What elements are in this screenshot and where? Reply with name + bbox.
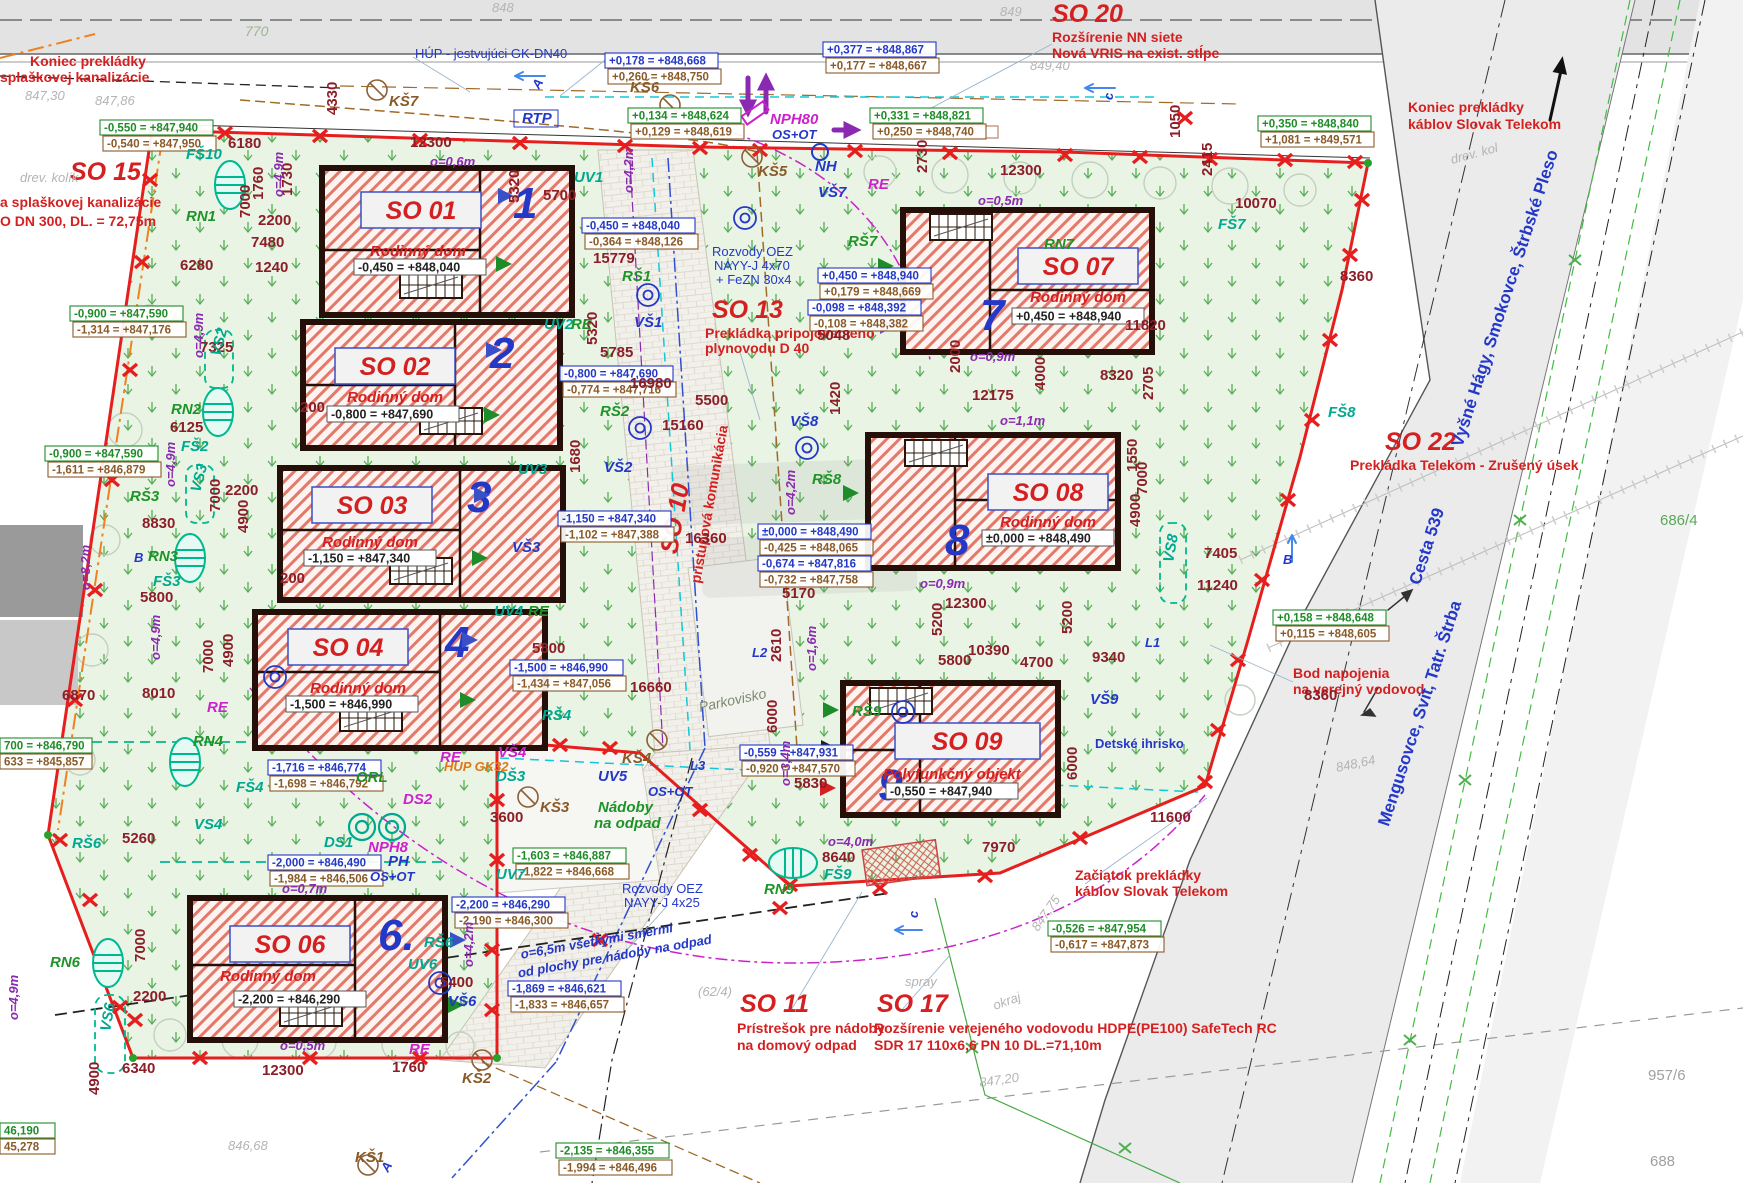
elevation-label: -0,550 = +847,940 <box>104 123 198 135</box>
code-label: VŠ1 <box>634 313 662 331</box>
annotation-so11: SO 11 Prístrešok pre nádoby na domový od… <box>737 990 885 1053</box>
elevation-label: -0,900 = +847,590 <box>49 449 143 461</box>
code-label: RE <box>868 176 890 193</box>
building-number: 6. <box>378 911 415 960</box>
so20-line2: Nová VRIS na exist. stĺpe <box>1052 44 1219 61</box>
code-label: NH <box>815 158 838 175</box>
code-label: VŠ6 <box>448 992 477 1010</box>
so11-line2: na domový odpad <box>737 1037 857 1053</box>
dim-label: 6340 <box>122 1060 155 1077</box>
dim-label: 200 <box>300 399 325 416</box>
code-label: VŠ3 <box>512 538 541 556</box>
dim-label: 6125 <box>170 419 203 436</box>
building-type: Rodinný dom <box>1000 514 1096 531</box>
rozvody70-l2: NAYY-J 4x70 <box>714 258 790 273</box>
dim-label: 7000 <box>237 185 254 218</box>
parcel-688: 688 <box>1650 1153 1675 1170</box>
dim-label: 2200 <box>133 988 166 1005</box>
so17-line2: SDR 17 110x6,6 PN 10 DL.=71,10m <box>874 1037 1102 1053</box>
dim-label: 5200 <box>929 603 946 636</box>
elevation-label: -1,994 = +846,496 <box>563 1163 657 1175</box>
dim-label: 5800 <box>532 640 565 657</box>
annotation-so15: SO 15 a splaškovej kanalizácie O DN 300,… <box>0 158 161 229</box>
building-so08: SO 08 8 Rodinný dom ±0,000 = +848,490 <box>868 435 1118 568</box>
dim-label: 8640 <box>822 849 855 866</box>
building-so06: SO 06 6. Rodinný dom -2,200 = +846,290 <box>190 898 445 1040</box>
rozvody70-note: Rozvody OEZ NAYY-J 4x70 + FeZN 30x4 <box>712 244 793 287</box>
rozvody70-l3: + FeZN 30x4 <box>716 272 792 287</box>
elevation-label: -0,098 = +848,392 <box>812 303 906 315</box>
offset-label: o=4,9m <box>148 614 163 660</box>
offset-label: o=1,1m <box>1000 413 1046 428</box>
dim-label: 16980 <box>630 375 672 392</box>
dim-label: 11820 <box>1125 317 1166 334</box>
elevation-label: 633 = +845,857 <box>4 757 85 769</box>
so15-line2: O DN 300, DL. = 72,75m <box>0 213 156 229</box>
contour-label: 846,68 <box>228 1138 269 1153</box>
dim-label: 10390 <box>968 642 1010 659</box>
code-label: PH <box>388 853 410 870</box>
dim-label: 200 <box>280 570 305 587</box>
code-label: KŠ3 <box>540 798 570 816</box>
dim-label: 6280 <box>180 257 213 274</box>
contour-label: 847,30 <box>25 88 66 103</box>
bn-line1: Bod napojenia <box>1293 665 1390 681</box>
dim-label: 4900 <box>1127 494 1144 527</box>
dim-label: 2200 <box>225 482 258 499</box>
elevation-label: 700 = +846,790 <box>4 741 85 753</box>
dim-label: 12300 <box>262 1062 304 1079</box>
building-elev: -2,200 = +846,290 <box>238 993 340 1007</box>
code-label: RŠ7 <box>848 232 878 250</box>
code-label: UV6 <box>408 956 438 973</box>
nadoby-l1: Nádoby <box>598 799 654 816</box>
site-plan: SO 01 1 Rodinný dom -0,450 = +848,040 SO… <box>0 0 1743 1183</box>
dim-label: 11240 <box>1197 577 1238 594</box>
contour-label: drev. kolík <box>20 170 80 185</box>
offset-label: o=4,2m <box>783 469 798 515</box>
dim-label: 2610 <box>768 629 785 662</box>
dim-label: 8830 <box>142 515 175 532</box>
code-label: FŠ8 <box>1328 403 1356 421</box>
elevation-label: +0,115 = +848,605 <box>1280 629 1377 641</box>
dim-label: 5800 <box>938 652 971 669</box>
elevation-label: -0,364 = +848,126 <box>589 237 683 249</box>
code-label: DS2 <box>403 791 433 808</box>
elevation-label: -1,869 = +846,621 <box>512 984 607 996</box>
code-label: KŠ4 <box>622 749 652 767</box>
contour-label: spray <box>905 974 938 989</box>
code-label: L2 <box>752 645 768 660</box>
offset-label: o=4,9m <box>271 151 286 197</box>
so17-title: SO 17 <box>877 990 949 1018</box>
kt-line1: Koniec prekládky <box>1408 99 1524 115</box>
building-elev: -1,500 = +846,990 <box>290 698 392 712</box>
elevation-label: 46,190 <box>4 1126 39 1138</box>
code-label: RE <box>528 603 550 620</box>
elevation-label: +0,331 = +848,821 <box>874 111 971 123</box>
site-plan-canvas: SO 01 1 Rodinný dom -0,450 = +848,040 SO… <box>0 0 1743 1183</box>
rozvody25-l2: NAYY-J 4x25 <box>624 895 700 910</box>
so15-line1: a splaškovej kanalizácie <box>0 194 161 210</box>
code-label: FŠ2 <box>181 437 209 455</box>
building-elev: ±0,000 = +848,490 <box>986 532 1091 546</box>
code-label: UV1 <box>574 169 603 186</box>
dim-label: 7480 <box>251 234 284 251</box>
code-label: RN9 <box>764 881 795 898</box>
parcel-957-6: 957/6 <box>1648 1067 1686 1084</box>
code-label: RŠ1 <box>622 267 651 285</box>
dim-label: 12300 <box>410 134 452 151</box>
elevation-label: -1,150 = +847,340 <box>562 514 656 526</box>
code-label: FŠ7 <box>1218 215 1246 233</box>
dim-label: 4900 <box>220 634 237 667</box>
code-label: RN2 <box>171 401 202 418</box>
zt-line1: Začiatok prekládky <box>1075 867 1201 883</box>
rozvody70-l1: Rozvody OEZ <box>712 244 793 259</box>
code-label: RN3 <box>148 548 179 565</box>
offset-label: o=1,6m <box>804 625 819 671</box>
dim-label: 1050 <box>1167 105 1184 138</box>
contour-label: 849,40 <box>1030 58 1071 73</box>
code-label: RE <box>409 1041 431 1058</box>
code-label: OS+OT <box>370 869 415 884</box>
dim-label: 8360 <box>1340 268 1373 285</box>
so22-line1: Prekládka Telekom - Zrušený úsek <box>1350 457 1579 473</box>
code-label: RŠ4 <box>542 706 572 724</box>
code-label: VŠ9 <box>1090 690 1119 708</box>
dim-label: 15779 <box>593 250 635 267</box>
elevation-label: -1,102 = +847,388 <box>565 530 660 542</box>
contour-label: okraj <box>991 989 1024 1013</box>
dim-label: 7970 <box>982 839 1015 856</box>
dim-label: 5200 <box>1059 601 1076 634</box>
dim-label: 5048 <box>817 327 850 344</box>
code-label: VŠ7 <box>818 183 847 201</box>
building-id: SO 03 <box>337 492 408 520</box>
building-elev: -0,450 = +848,040 <box>358 261 460 275</box>
elevation-label: -2,200 = +846,290 <box>456 900 550 912</box>
code-label: L3 <box>690 758 706 773</box>
dim-label: 15160 <box>662 417 704 434</box>
code-label: RŠ2 <box>600 402 630 420</box>
dim-label: 5400 <box>440 974 473 991</box>
code-label: RN6 <box>50 954 81 971</box>
building-id: SO 07 <box>1043 253 1115 281</box>
code-label: KŠ7 <box>389 92 419 110</box>
nadoby-note: Nádoby na odpad <box>594 799 662 832</box>
building-elev: -0,800 = +847,690 <box>331 408 433 422</box>
building-so07: SO 07 7 Rodinný dom +0,450 = +848,940 <box>903 210 1152 352</box>
kk-line2: splaškovej kanalizácie <box>0 69 150 85</box>
elevation-label: -0,425 = +848,065 <box>764 543 859 555</box>
dim-label: 5785 <box>600 344 633 361</box>
offset-label: o=8,2m <box>78 544 93 590</box>
dim-label: 3600 <box>490 809 523 826</box>
building-so01: SO 01 1 Rodinný dom -0,450 = +848,040 <box>322 168 572 315</box>
elevation-label: -1,822 = +846,668 <box>520 867 615 879</box>
elevation-label: -0,617 = +847,873 <box>1055 940 1149 952</box>
offset-label: o=4,9m <box>6 974 21 1020</box>
so20-title: SO 20 <box>1052 0 1123 28</box>
dim-label: 1420 <box>827 382 844 415</box>
elevation-label: -2,135 = +846,355 <box>560 1146 655 1158</box>
dim-label: 6180 <box>228 135 261 152</box>
dim-label: 6000 <box>764 700 781 733</box>
building-number: 8 <box>945 516 970 565</box>
offset-label: o=0,6m <box>430 154 476 169</box>
so15-title: SO 15 <box>70 158 142 186</box>
code-label: UV4 <box>494 603 524 620</box>
building-elev: -1,150 = +847,340 <box>308 552 410 566</box>
elevation-label: +0,250 = +848,740 <box>877 127 974 139</box>
elevation-label: -1,833 = +846,657 <box>515 1000 609 1012</box>
code-label: RTP <box>522 110 553 127</box>
contour-label: 847,86 <box>95 93 136 108</box>
code-label: ORL <box>356 769 388 786</box>
parcel-62-4: (62/4) <box>698 984 732 999</box>
elevation-label: -0,450 = +848,040 <box>586 221 680 233</box>
dim-label: 2200 <box>258 212 291 229</box>
code-label: RŠ9 <box>852 702 882 720</box>
dim-label: 10070 <box>1235 195 1277 212</box>
elevation-label: -1,716 = +846,774 <box>272 763 367 775</box>
dim-label: 7405 <box>1204 545 1237 562</box>
offset-label: o=4,9m <box>163 441 178 487</box>
dim-label: 8010 <box>142 685 175 702</box>
elevation-label: -1,603 = +846,887 <box>517 851 611 863</box>
kt-line2: káblov Slovak Telekom <box>1408 116 1561 132</box>
dim-label: 4330 <box>324 82 341 115</box>
building-id: SO 01 <box>386 197 457 225</box>
rozvody25-note: Rozvody OEZ NAYY-J 4x25 <box>622 881 703 910</box>
dim-label: 7000 <box>132 929 149 962</box>
building-type: Polyfunkčný objekt <box>883 766 1022 783</box>
building-type: Rodinný dom <box>370 243 466 260</box>
dim-label: 8320 <box>1100 367 1133 384</box>
elevation-label: +0,177 = +848,667 <box>830 61 927 73</box>
code-label: UV3 <box>518 461 548 478</box>
code-label: KŠ6 <box>630 78 660 96</box>
dim-label: 5830 <box>794 775 827 792</box>
elevation-label: +0,450 = +848,940 <box>822 271 919 283</box>
code-label: OS+OT <box>648 784 693 799</box>
dim-label: 9340 <box>1092 649 1125 666</box>
dim-label: 5500 <box>695 392 728 409</box>
elevation-label: -1,314 = +847,176 <box>77 325 171 337</box>
elevation-label: +0,129 = +848,619 <box>635 127 732 139</box>
code-label: RŠ8 <box>812 470 842 488</box>
code-label: c <box>906 910 921 918</box>
contour-label: 849 <box>1000 4 1022 19</box>
offset-label: o=4,2m <box>621 147 636 193</box>
offset-label: o=0,7m <box>282 881 328 896</box>
building-so03: SO 03 3 Rodinný dom -1,150 = +847,340 <box>280 468 563 600</box>
code-label: FŠ9 <box>824 865 852 883</box>
ihrisko-label: Detské ihrisko <box>1095 736 1184 751</box>
code-label: UV2 <box>544 316 574 333</box>
code-label: RN1 <box>186 208 216 225</box>
stairs-icon <box>400 272 462 298</box>
elevation-label: -0,920 = +847,570 <box>746 764 840 776</box>
dim-label: 6000 <box>1064 747 1081 780</box>
so20-line1: Rozšírenie NN siete <box>1052 29 1183 45</box>
building-type: Rodinný dom <box>220 968 316 985</box>
code-label: FŠ10 <box>186 145 223 163</box>
so13-title: SO 13 <box>712 296 783 324</box>
annotation-koniec-kanalizacie: Koniec prekládky splaškovej kanalizácie <box>0 53 150 85</box>
code-label: VS4 <box>194 816 223 833</box>
offset-label: o=4,2m <box>461 921 476 967</box>
dim-label: 6870 <box>62 687 95 704</box>
elevation-label: -1,434 = +847,056 <box>517 679 611 691</box>
code-label: VŠ2 <box>604 458 633 476</box>
elevation-label: -0,900 = +847,590 <box>74 309 168 321</box>
offset-label: o=4,9m <box>191 312 206 358</box>
dim-label: 1240 <box>255 259 288 276</box>
contour-label: 848 <box>492 0 514 15</box>
elevation-label: +0,179 = +848,669 <box>824 287 921 299</box>
offset-label: o=0,9m <box>920 576 966 591</box>
building-id: SO 04 <box>313 634 384 662</box>
building-type: Rodinný dom <box>310 680 406 697</box>
code-label: RN4 <box>193 733 224 750</box>
code-label: RE <box>207 699 229 716</box>
dim-label: 2705 <box>1140 367 1157 400</box>
code-label: VS6 <box>97 1001 119 1033</box>
code-label: UV5 <box>598 768 628 785</box>
so11-title: SO 11 <box>740 990 809 1018</box>
elevation-label: -0,674 = +847,816 <box>762 559 856 571</box>
code-label: HUP GK32 <box>444 759 509 774</box>
parcel-686-4: 686/4 <box>1660 512 1698 529</box>
code-label: RE <box>571 316 593 333</box>
stairs-icon <box>905 440 967 466</box>
code-label: RŠ3 <box>130 487 160 505</box>
building-type: Rodinný dom <box>322 534 418 551</box>
code-label: VŠ8 <box>790 412 819 430</box>
elevation-label: +0,260 = +848,750 <box>612 72 709 84</box>
building-number: 7 <box>980 291 1007 340</box>
elevation-label: -1,500 = +846,990 <box>514 663 608 675</box>
code-label: KŠ5 <box>758 162 788 180</box>
offset-label: o=0,5m <box>280 1038 326 1053</box>
dim-label: 5320 <box>506 170 523 203</box>
code-label: NPH80 <box>770 111 819 128</box>
dim-label: 4900 <box>235 500 252 533</box>
elevation-label: +1,081 = +849,571 <box>1265 135 1362 147</box>
dim-label: 12300 <box>945 595 987 612</box>
kk-line1: Koniec prekládky <box>30 53 146 69</box>
building-so04: SO 04 4 Rodinný dom -1,500 = +846,990 <box>255 612 545 748</box>
contour-label: 847,20 <box>978 1069 1020 1089</box>
dim-label: 2730 <box>914 140 931 173</box>
code-label: OS+OT <box>772 127 817 142</box>
building-elev: -0,550 = +847,940 <box>890 785 992 799</box>
dim-label: 12300 <box>1000 162 1042 179</box>
code-label: RŠ6 <box>72 834 102 852</box>
dim-label: 7000 <box>207 479 224 512</box>
offset-label: o=3,4m <box>778 740 793 786</box>
dim-label: 1760 <box>392 1059 425 1076</box>
dim-label: 2415 <box>1199 143 1216 176</box>
offset-label: o=0,9m <box>970 349 1016 364</box>
so22-title: SO 22 <box>1385 428 1456 456</box>
so13-line2: plynovodu D 40 <box>705 340 809 356</box>
code-label: B <box>134 550 143 565</box>
building-type: Rodinný dom <box>347 389 443 406</box>
code-label: KŠ2 <box>462 1069 492 1087</box>
elevation-label: +0,377 = +848,867 <box>827 45 924 57</box>
code-label: UV7 <box>496 866 526 883</box>
contour-label: 770 <box>245 23 269 39</box>
dim-label: 5260 <box>122 830 155 847</box>
zt-line2: káblov Slovak Telekom <box>1075 883 1228 899</box>
dim-label: 11600 <box>1150 809 1191 826</box>
elevation-label: -1,698 = +846,792 <box>274 779 368 791</box>
code-label: c <box>1101 92 1116 100</box>
building-type: Rodinný dom <box>1030 289 1126 306</box>
elevation-label: -2,000 = +846,490 <box>272 858 366 870</box>
offset-label: o=0,5m <box>978 193 1024 208</box>
elevation-label: +0,158 = +848,648 <box>1277 613 1374 625</box>
so17-line1: Rozšírenie verejeného vodovodu HDPE(PE10… <box>874 1020 1277 1036</box>
dim-label: 4000 <box>1032 357 1049 390</box>
stairs-icon <box>930 214 992 240</box>
hup-note: HÚP - jestvujúci GK-DN40 <box>415 46 567 61</box>
code-label: FŠ4 <box>236 778 264 796</box>
dim-label: 8360 <box>1304 687 1337 704</box>
code-label: A <box>377 1159 395 1175</box>
building-id: SO 09 <box>932 728 1003 756</box>
dim-label: 12175 <box>972 387 1014 404</box>
code-label: FŠ3 <box>153 572 181 590</box>
code-label: RŠ6 <box>424 933 454 951</box>
code-label: L1 <box>1145 635 1160 650</box>
elevation-label: -1,611 = +846,879 <box>52 465 145 477</box>
dim-label: 5800 <box>140 589 173 606</box>
dim-label: 2000 <box>947 340 964 373</box>
dim-label: 7000 <box>200 640 217 673</box>
building-elev: +0,450 = +848,940 <box>1016 310 1121 324</box>
dim-label: 16360 <box>685 530 727 547</box>
elevation-label: +0,178 = +848,668 <box>609 56 706 68</box>
building-id: SO 06 <box>255 931 327 959</box>
rozvody25-l1: Rozvody OEZ <box>622 881 703 896</box>
dim-label: 5170 <box>782 585 815 602</box>
code-label: B <box>1283 552 1292 567</box>
elevation-label: +0,134 = +848,624 <box>632 111 729 123</box>
elevation-label: ±0,000 = +848,490 <box>762 527 858 539</box>
elevation-label: +0,350 = +848,840 <box>1262 119 1359 131</box>
dim-label: 1680 <box>567 440 584 473</box>
nadoby-l2: na odpad <box>594 815 662 832</box>
elevation-label: 45,278 <box>4 1142 40 1154</box>
so11-line1: Prístrešok pre nádoby <box>737 1020 885 1036</box>
dim-label: 4700 <box>1020 654 1053 671</box>
code-label: DS1 <box>324 834 353 851</box>
dim-label: 5700 <box>543 187 576 204</box>
dim-label: 16660 <box>630 679 672 696</box>
elevation-label: -0,526 = +847,954 <box>1052 924 1147 936</box>
dim-label: 7000 <box>1134 462 1151 495</box>
building-id: SO 08 <box>1013 479 1084 507</box>
existing-building <box>0 525 83 617</box>
dim-label: 4900 <box>86 1062 103 1095</box>
building-so02: SO 02 2 Rodinný dom -0,800 = +847,690 <box>303 322 560 448</box>
building-id: SO 02 <box>360 353 431 381</box>
offset-label: o=4,0m <box>828 834 874 849</box>
